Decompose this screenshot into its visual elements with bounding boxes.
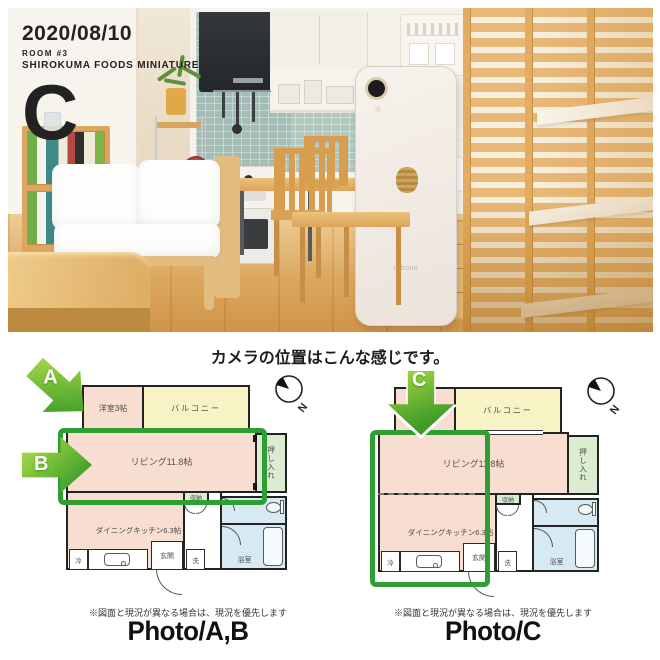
wood-slat-screen xyxy=(463,8,653,332)
washer-label: 洗 xyxy=(504,557,511,567)
compass-n-label: N xyxy=(296,401,310,415)
room-number-label: ROOM #3 xyxy=(22,49,199,58)
chair-leg xyxy=(316,220,321,278)
glass-container xyxy=(278,84,300,104)
room-storage: 収納 xyxy=(495,493,521,505)
room-balcony: バルコニー xyxy=(454,387,562,434)
washer-box: 洗 xyxy=(498,551,517,572)
page: iPhone 2020/08/10 ROOM #3 SHIROKUMA FOOD… xyxy=(0,0,660,660)
camera-arrow-c: C xyxy=(384,367,458,439)
washer-box: 洗 xyxy=(186,549,205,570)
toilet-icon xyxy=(578,504,593,515)
photo-letter: C xyxy=(22,79,199,145)
coffee-table-leg xyxy=(344,227,349,297)
date-label: 2020/08/10 xyxy=(22,22,199,46)
room-bathroom-label: 浴室 xyxy=(238,555,252,565)
bathtub-icon xyxy=(575,529,595,568)
photo-header: 2020/08/10 ROOM #3 SHIROKUMA FOODS MINIA… xyxy=(22,22,199,145)
sink-drain-icon xyxy=(121,561,126,566)
floor-plan-right: バルコニー リビング11.8帖 押し入れ ダイニングキッチン6.3帖 収納 浴室… xyxy=(378,387,599,572)
dish-stack xyxy=(326,86,354,104)
photo-caption-right: Photo/C xyxy=(368,616,618,647)
camera-arrow-b: B xyxy=(22,437,92,493)
entrance-box: 玄関 xyxy=(151,541,183,570)
washer-label: 洗 xyxy=(192,555,199,565)
room-closet-label: 押し入れ xyxy=(266,446,277,480)
mini-bottles-row xyxy=(407,23,459,36)
compass-icon: N xyxy=(584,375,626,421)
room-bathroom-label: 浴室 xyxy=(550,557,564,567)
apple-logo-icon xyxy=(396,167,418,193)
room-storage-label: 収納 xyxy=(502,495,514,504)
sofa-leg xyxy=(204,264,214,310)
info-card xyxy=(409,43,429,65)
screen-shading xyxy=(463,8,653,332)
compass-icon: N xyxy=(272,373,314,419)
range-hood xyxy=(199,12,271,92)
iphone-camera-icon xyxy=(368,80,385,97)
sink-icon xyxy=(104,553,130,566)
glass-jar xyxy=(304,80,322,104)
chair-leg xyxy=(274,220,279,276)
iphone-label: iPhone xyxy=(356,265,456,272)
highlight-dk-zone xyxy=(370,430,490,587)
room-closet: 押し入れ xyxy=(567,435,599,495)
open-dish-shelf xyxy=(270,68,367,113)
arrow-c-label: C xyxy=(412,369,426,392)
photo-caption-left: Photo/A,B xyxy=(63,616,313,647)
sofa-back-cushion xyxy=(138,160,220,228)
coffee-table-leg xyxy=(300,227,305,303)
toilet-tank-icon xyxy=(280,500,284,514)
arrow-b-label: B xyxy=(34,453,48,476)
upper-cabinet xyxy=(270,12,367,70)
spatula-icon xyxy=(222,92,225,118)
camera-position-caption: カメラの位置はこんな感じです。 xyxy=(115,344,545,368)
info-card xyxy=(435,43,455,65)
range-hood-label xyxy=(233,78,263,83)
room-balcony-label: バルコニー xyxy=(171,403,221,414)
foreground-counter-side xyxy=(8,308,150,332)
fridge-box: 冷 xyxy=(69,549,88,570)
arrow-a-label: A xyxy=(43,366,57,389)
room-western-label: 洋室3帖 xyxy=(99,403,127,414)
turner-icon xyxy=(252,92,255,122)
coffee-table-top xyxy=(292,212,410,227)
room-balcony-label: バルコニー xyxy=(483,405,533,416)
miniature-room-photo: iPhone 2020/08/10 ROOM #3 SHIROKUMA FOOD… xyxy=(8,8,653,332)
room-dining-label: ダイニングキッチン6.3帖 xyxy=(96,525,181,536)
iphone-flash-icon xyxy=(375,106,381,112)
entrance-label: 玄関 xyxy=(160,551,174,561)
room-balcony: バルコニー xyxy=(142,385,250,432)
bathtub-icon xyxy=(263,527,283,566)
ladle-icon xyxy=(232,124,242,134)
sofa-back-cushion xyxy=(52,164,140,230)
coffee-table-leg xyxy=(396,227,401,305)
table-leg xyxy=(240,191,244,255)
toilet-icon xyxy=(266,502,281,513)
compass-n-label: N xyxy=(608,403,622,417)
fridge-label: 冷 xyxy=(75,555,82,565)
arrow-b-shape xyxy=(22,437,92,493)
entrance-door-arc xyxy=(156,569,182,595)
ladle-handle-icon xyxy=(236,92,239,126)
iphone: iPhone xyxy=(355,66,457,326)
toilet-tank-icon xyxy=(592,502,596,516)
floor-plan-left: 洋室3帖 バルコニー リビング11.8帖 押し入れ ダイニングキッチン6.3帖 … xyxy=(66,385,287,570)
room-closet-label: 押し入れ xyxy=(578,448,589,482)
chair-back-front xyxy=(274,148,332,216)
